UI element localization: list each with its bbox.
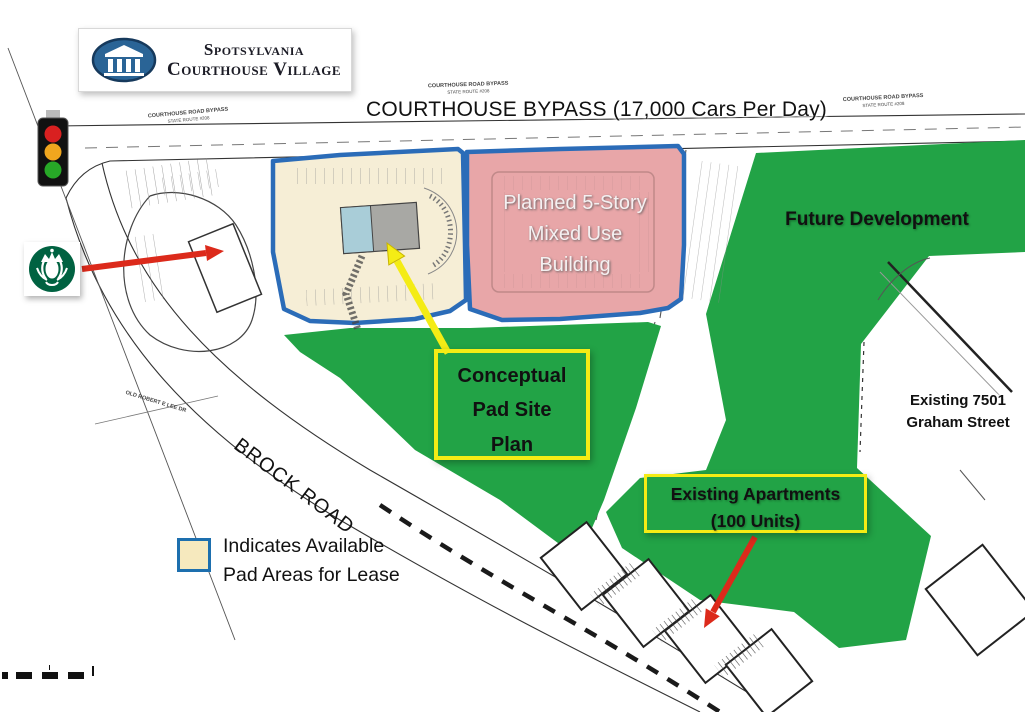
courthouse-logo-icon (91, 37, 157, 83)
logo-plaque: Spotsylvania Courthouse Village (78, 28, 352, 92)
site-plan-canvas: Spotsylvania Courthouse Village COURTHOU… (0, 0, 1025, 712)
legend-text: Indicates Available Pad Areas for Lease (223, 532, 400, 591)
map-scale-bar (2, 668, 102, 684)
traffic-light-icon (36, 108, 72, 190)
future-development-label: Future Development (768, 209, 986, 231)
legend-pad-swatch (177, 538, 211, 572)
bottom-right-building (926, 545, 1025, 656)
logo-line-1: Spotsylvania (157, 40, 351, 59)
existing-apartments-callout: Existing Apartments (100 Units) (644, 474, 867, 533)
conceptual-pad-callout: Conceptual Pad Site Plan (434, 349, 590, 460)
graham-street-label: Existing 7501 Graham Street (896, 390, 1020, 434)
logo-line-2: Courthouse Village (157, 59, 351, 80)
legend: Indicates Available Pad Areas for Lease (177, 532, 400, 591)
pad-site-parcel (273, 149, 466, 330)
courthouse-bypass-banner: COURTHOUSE BYPASS (17,000 Cars Per Day) (366, 98, 827, 122)
conceptual-pad-building (340, 202, 419, 253)
logo-wordmark: Spotsylvania Courthouse Village (157, 40, 351, 80)
mixed-use-label: Planned 5-Story Mixed Use Building (478, 188, 672, 281)
starbucks-logo-icon (24, 242, 80, 298)
starbucks-target-building (189, 224, 262, 312)
